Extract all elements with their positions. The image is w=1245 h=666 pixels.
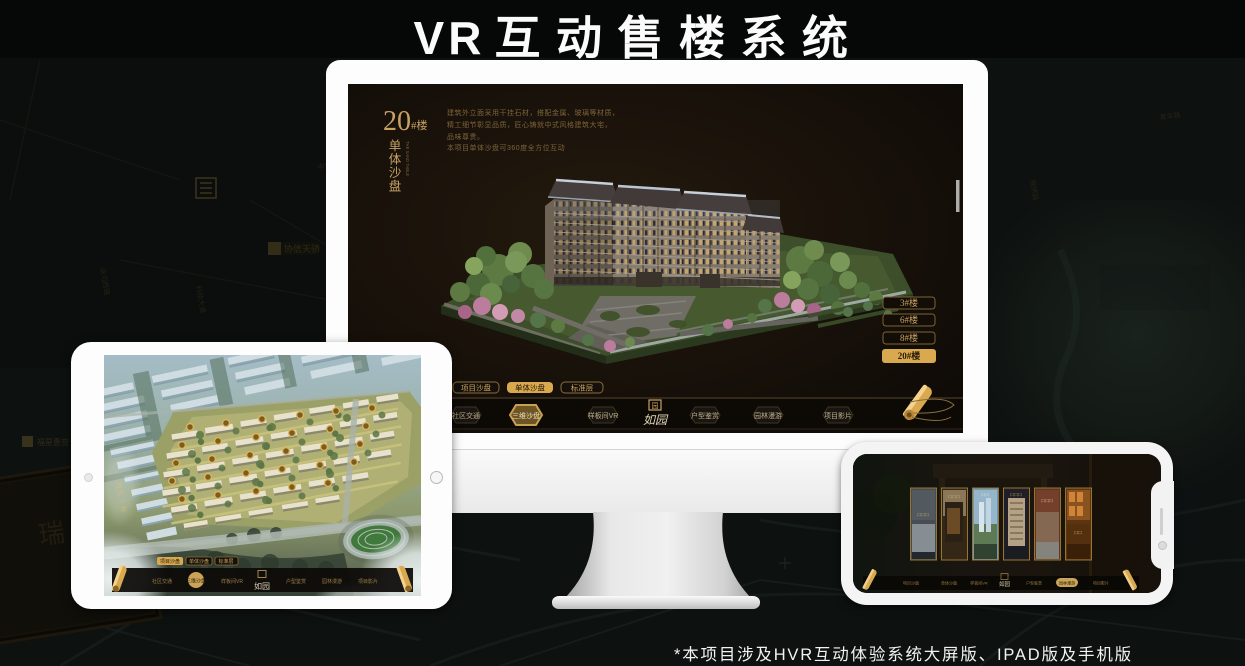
- svg-text:THE SAND TABLE: THE SAND TABLE: [405, 141, 410, 176]
- svg-text:户型鉴赏: 户型鉴赏: [286, 578, 306, 585]
- svg-text:口口口: 口口口: [1041, 498, 1053, 503]
- svg-text:样板间VR: 样板间VR: [588, 411, 619, 420]
- svg-text:沙: 沙: [389, 166, 402, 180]
- svg-text:科技大道: 科技大道: [194, 285, 208, 314]
- svg-text:单体沙盘: 单体沙盘: [189, 558, 209, 565]
- svg-text:社区交通: 社区交通: [152, 578, 172, 585]
- svg-text:三维沙盘: 三维沙盘: [512, 411, 540, 420]
- svg-text:三维沙盘: 三维沙盘: [186, 578, 206, 585]
- svg-text:20#楼: 20#楼: [898, 350, 921, 361]
- svg-text:如园: 如园: [254, 581, 270, 591]
- svg-text:单: 单: [389, 139, 402, 153]
- svg-text:项目影片: 项目影片: [1093, 580, 1109, 586]
- svg-text:样板间VR: 样板间VR: [221, 578, 243, 585]
- svg-text:园林漫游: 园林漫游: [754, 411, 782, 420]
- svg-text:社区交通: 社区交通: [452, 411, 480, 420]
- svg-text:园林漫游: 园林漫游: [322, 578, 342, 585]
- svg-text:单体沙盘: 单体沙盘: [941, 580, 957, 586]
- svg-text:本项目单体沙盘可360度全方位互动: 本项目单体沙盘可360度全方位互动: [447, 143, 565, 152]
- svg-text:口口: 口口: [981, 492, 989, 497]
- svg-text:品味尊贵。: 品味尊贵。: [447, 132, 485, 141]
- svg-text:体: 体: [389, 153, 402, 167]
- svg-text:标准层: 标准层: [218, 558, 233, 565]
- svg-text:协信天骄: 协信天骄: [284, 243, 320, 254]
- svg-text:标准层: 标准层: [571, 383, 594, 393]
- svg-text:建筑外立面采用干挂石材，搭配金属、玻璃等材质，: 建筑外立面采用干挂石材，搭配金属、玻璃等材质，: [447, 108, 620, 117]
- svg-text:项目沙盘: 项目沙盘: [160, 558, 180, 565]
- svg-text:3#楼: 3#楼: [900, 297, 918, 308]
- svg-text:单体沙盘: 单体沙盘: [515, 383, 545, 393]
- svg-text:6#楼: 6#楼: [900, 314, 918, 325]
- svg-text:园: 园: [652, 402, 659, 410]
- svg-text:户型鉴赏: 户型鉴赏: [1026, 580, 1042, 586]
- svg-text:如园: 如园: [999, 580, 1011, 588]
- svg-text:如园: 如园: [643, 413, 669, 427]
- svg-text:滨河西路: 滨河西路: [98, 267, 112, 296]
- svg-text:口口口: 口口口: [1010, 492, 1022, 497]
- svg-text:口口口: 口口口: [948, 494, 960, 499]
- svg-text:项目影片: 项目影片: [358, 578, 378, 585]
- svg-text:户型鉴赏: 户型鉴赏: [691, 411, 719, 420]
- svg-text:8#楼: 8#楼: [900, 332, 918, 343]
- svg-text:青年路: 青年路: [1159, 110, 1181, 122]
- svg-text:盘: 盘: [389, 179, 402, 194]
- svg-text:园林漫游: 园林漫游: [1059, 580, 1075, 586]
- svg-text:项目沙盘: 项目沙盘: [461, 383, 491, 393]
- svg-text:锦绣路: 锦绣路: [1028, 179, 1041, 201]
- svg-text:口口口: 口口口: [917, 512, 929, 517]
- svg-text:项目影片: 项目影片: [824, 411, 852, 420]
- svg-text:项目沙盘: 项目沙盘: [903, 580, 919, 586]
- svg-text:口口: 口口: [1074, 530, 1082, 535]
- svg-text:福星惠誉: 福星惠誉: [37, 437, 69, 447]
- svg-text:样板间VR: 样板间VR: [970, 580, 988, 586]
- svg-text:精工细节彰显品质，匠心铸就中式风格建筑大宅，: 精工细节彰显品质，匠心铸就中式风格建筑大宅，: [447, 120, 612, 129]
